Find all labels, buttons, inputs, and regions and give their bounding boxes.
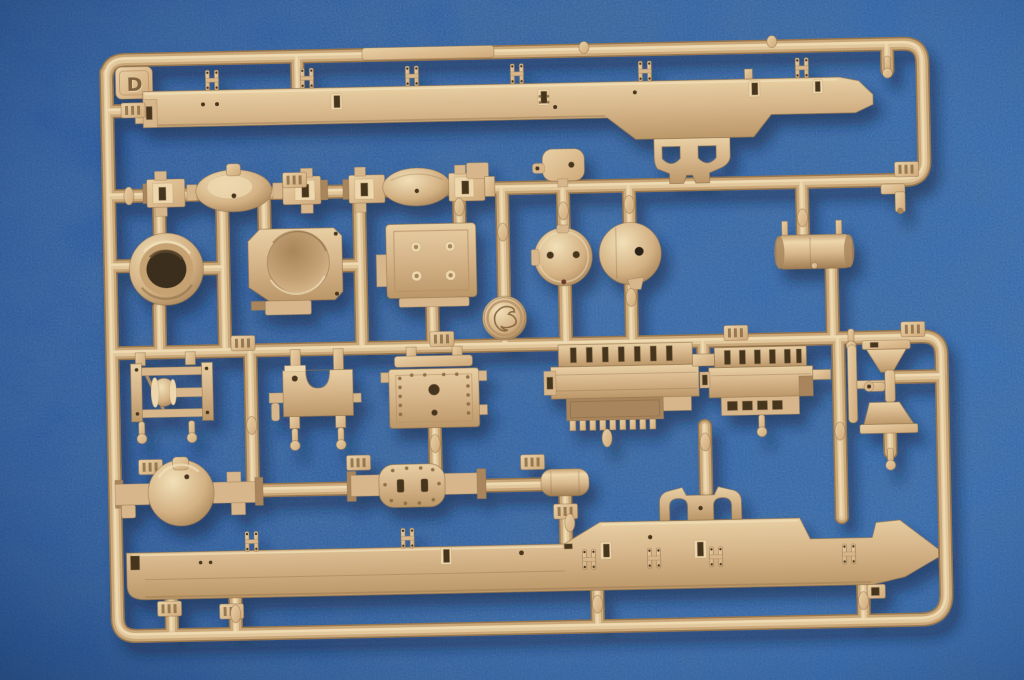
engine-teeth [570,419,656,431]
sprue-photo: D D [0,0,1024,680]
photo-stage: D D [0,0,1024,680]
ingate-strip [362,45,494,60]
sprue-letter: D [126,74,142,96]
ejector-nub [767,35,777,47]
ejector-nub [579,41,589,53]
